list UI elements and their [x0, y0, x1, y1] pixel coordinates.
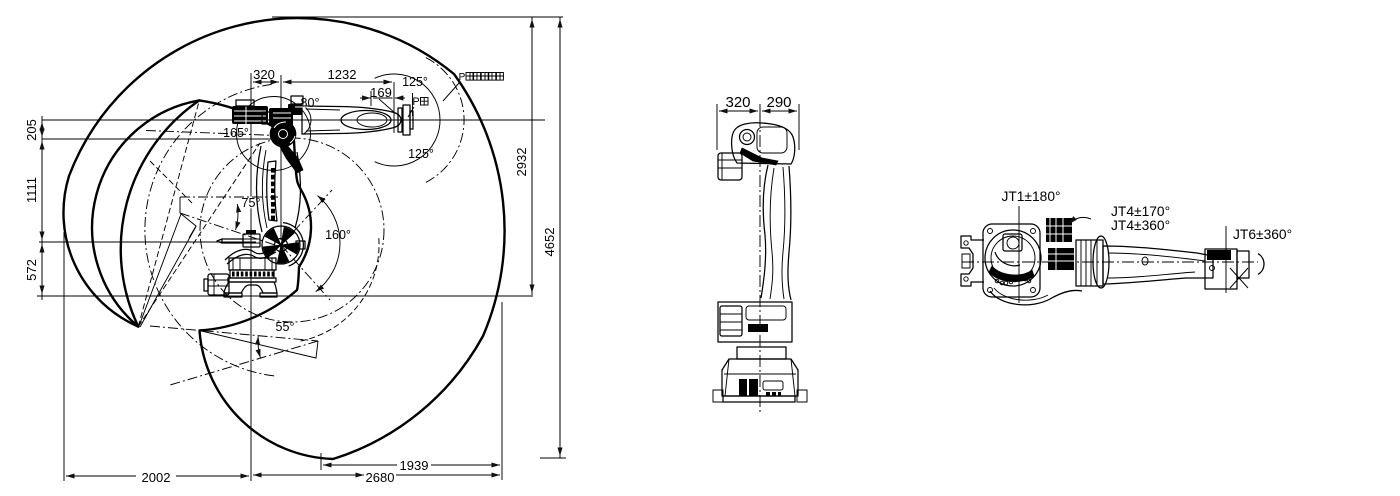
svg-text:JT1±180°: JT1±180°: [1001, 189, 1060, 204]
svg-text:169: 169: [370, 85, 392, 100]
svg-text:JT6±360°: JT6±360°: [1233, 227, 1292, 242]
svg-text:2932: 2932: [514, 148, 529, 177]
svg-text:320: 320: [253, 67, 275, 82]
svg-text:572: 572: [24, 259, 39, 281]
svg-text:4652: 4652: [542, 228, 557, 257]
svg-text:P: P: [412, 96, 419, 108]
svg-text:2680: 2680: [366, 470, 395, 485]
svg-text:1232: 1232: [328, 67, 357, 82]
svg-text:320: 320: [725, 94, 750, 111]
svg-text:160°: 160°: [325, 228, 351, 242]
svg-text:125°: 125°: [402, 75, 428, 89]
svg-text:290: 290: [766, 94, 791, 111]
svg-text:P: P: [459, 72, 466, 83]
svg-text:165°: 165°: [223, 126, 249, 140]
svg-text:1111: 1111: [24, 177, 39, 203]
svg-text:2002: 2002: [142, 470, 171, 485]
svg-text:205: 205: [24, 119, 39, 141]
svg-text:JT4±170°: JT4±170°: [1111, 204, 1170, 219]
svg-text:1939: 1939: [400, 458, 429, 473]
svg-text:JT4±360°: JT4±360°: [1111, 218, 1170, 233]
